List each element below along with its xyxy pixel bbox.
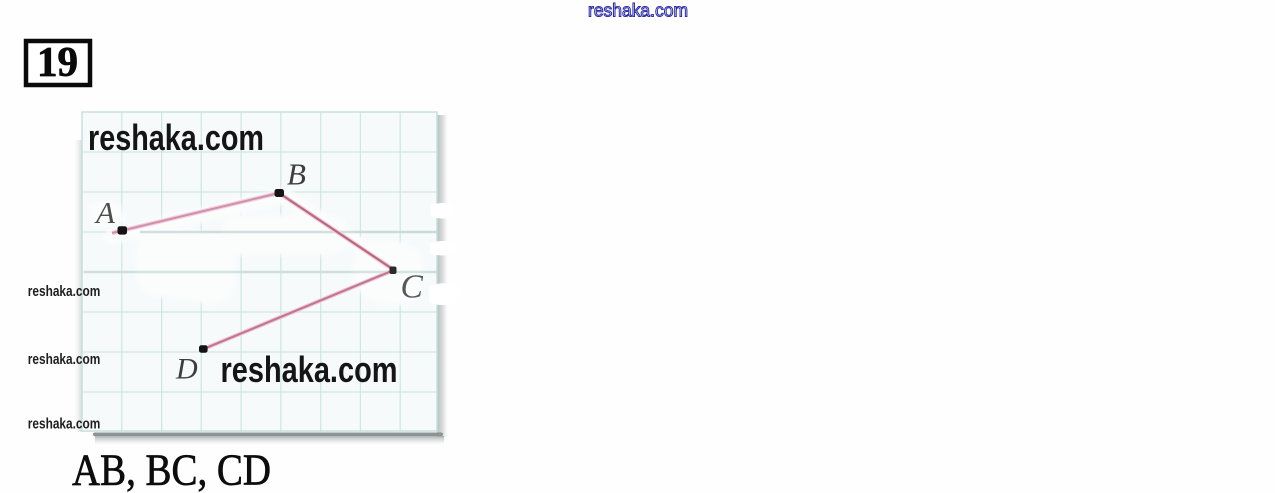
svg-text:19: 19 bbox=[37, 39, 78, 86]
svg-text:D: D bbox=[175, 353, 198, 386]
svg-text:reshaka.com: reshaka.com bbox=[28, 283, 101, 300]
svg-text:reshaka.com: reshaka.com bbox=[88, 117, 264, 158]
svg-text:C: C bbox=[401, 269, 424, 306]
svg-text:reshaka.com: reshaka.com bbox=[28, 416, 101, 433]
svg-text:AB, BC, CD: AB, BC, CD bbox=[72, 446, 271, 493]
svg-text:B: B bbox=[287, 157, 306, 192]
svg-text:A: A bbox=[94, 195, 116, 230]
svg-text:reshaka.com: reshaka.com bbox=[221, 349, 398, 390]
svg-text:reshaka.com: reshaka.com bbox=[588, 1, 688, 21]
svg-text:reshaka.com: reshaka.com bbox=[28, 351, 101, 368]
